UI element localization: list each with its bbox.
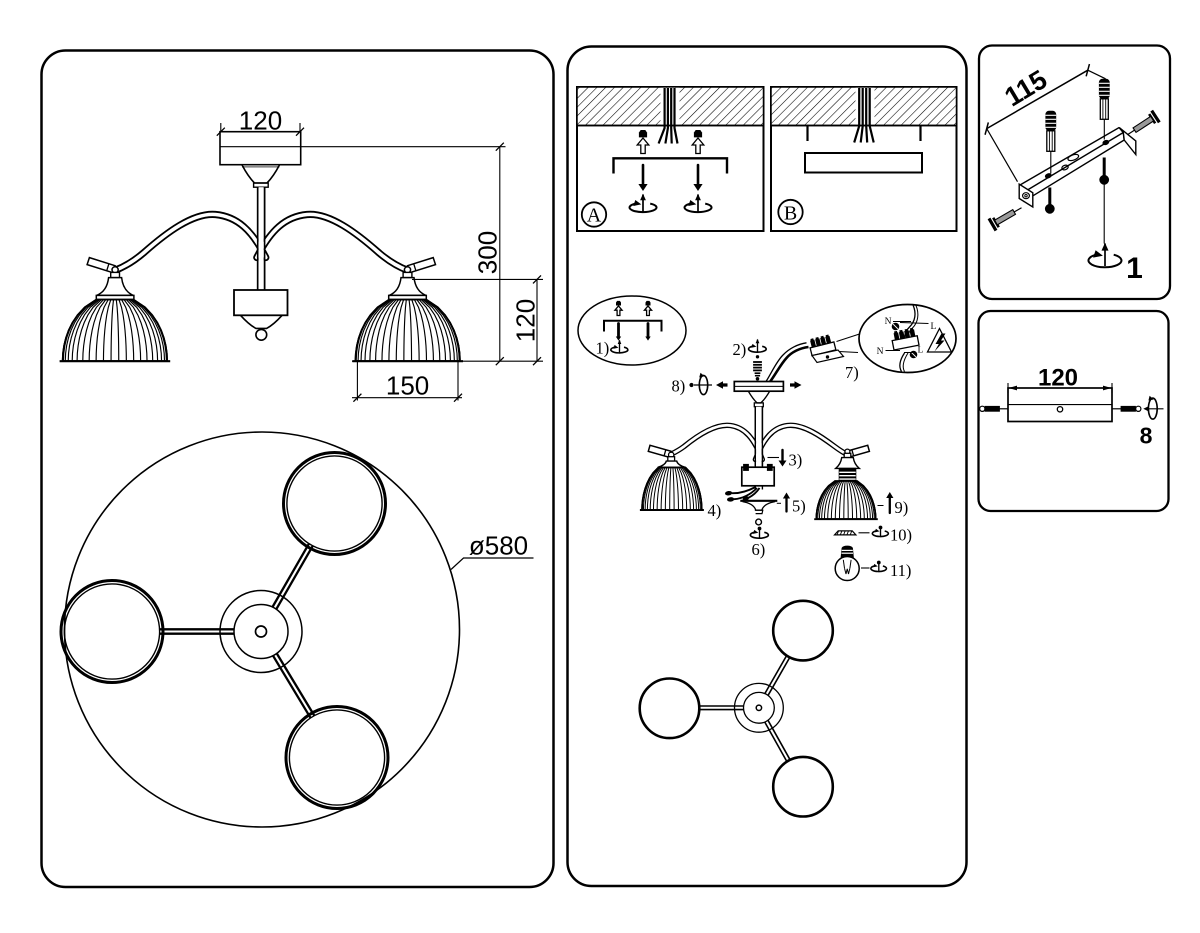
svg-text:10): 10) <box>890 526 912 545</box>
svg-text:L: L <box>931 322 937 332</box>
svg-text:5): 5) <box>792 497 806 516</box>
svg-text:3): 3) <box>789 451 803 470</box>
svg-text:8): 8) <box>672 377 686 396</box>
svg-text:8: 8 <box>1140 423 1153 449</box>
svg-text:N: N <box>877 347 884 357</box>
svg-text:120: 120 <box>511 299 541 342</box>
svg-text:1: 1 <box>1126 252 1143 285</box>
svg-text:2): 2) <box>733 340 747 359</box>
svg-text:A: A <box>587 205 602 227</box>
svg-text:B: B <box>784 203 797 225</box>
svg-text:150: 150 <box>386 371 429 401</box>
svg-text:9): 9) <box>895 498 909 517</box>
svg-text:4): 4) <box>708 501 722 520</box>
svg-text:L: L <box>918 346 924 356</box>
svg-text:6): 6) <box>752 540 766 559</box>
svg-text:1): 1) <box>596 339 610 358</box>
svg-text:N: N <box>885 317 892 327</box>
svg-text:11): 11) <box>890 561 911 580</box>
svg-text:7): 7) <box>845 363 859 382</box>
svg-text:300: 300 <box>473 231 503 274</box>
svg-text:ø580: ø580 <box>469 531 528 561</box>
